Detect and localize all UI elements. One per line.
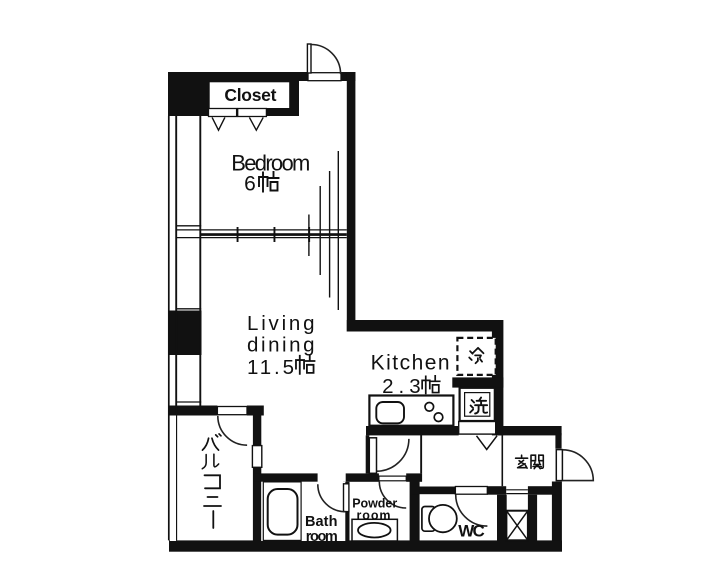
svg-text:Closet: Closet xyxy=(224,85,276,105)
svg-text:Bath: Bath xyxy=(305,514,338,530)
svg-text:room: room xyxy=(306,529,338,545)
svg-text:WC: WC xyxy=(458,522,485,541)
svg-text:6: 6 xyxy=(244,173,256,196)
svg-text:Living: Living xyxy=(247,312,315,335)
svg-text:Bedroom: Bedroom xyxy=(231,150,310,175)
svg-text:11.5: 11.5 xyxy=(247,356,294,379)
svg-text:2.3: 2.3 xyxy=(382,375,421,398)
